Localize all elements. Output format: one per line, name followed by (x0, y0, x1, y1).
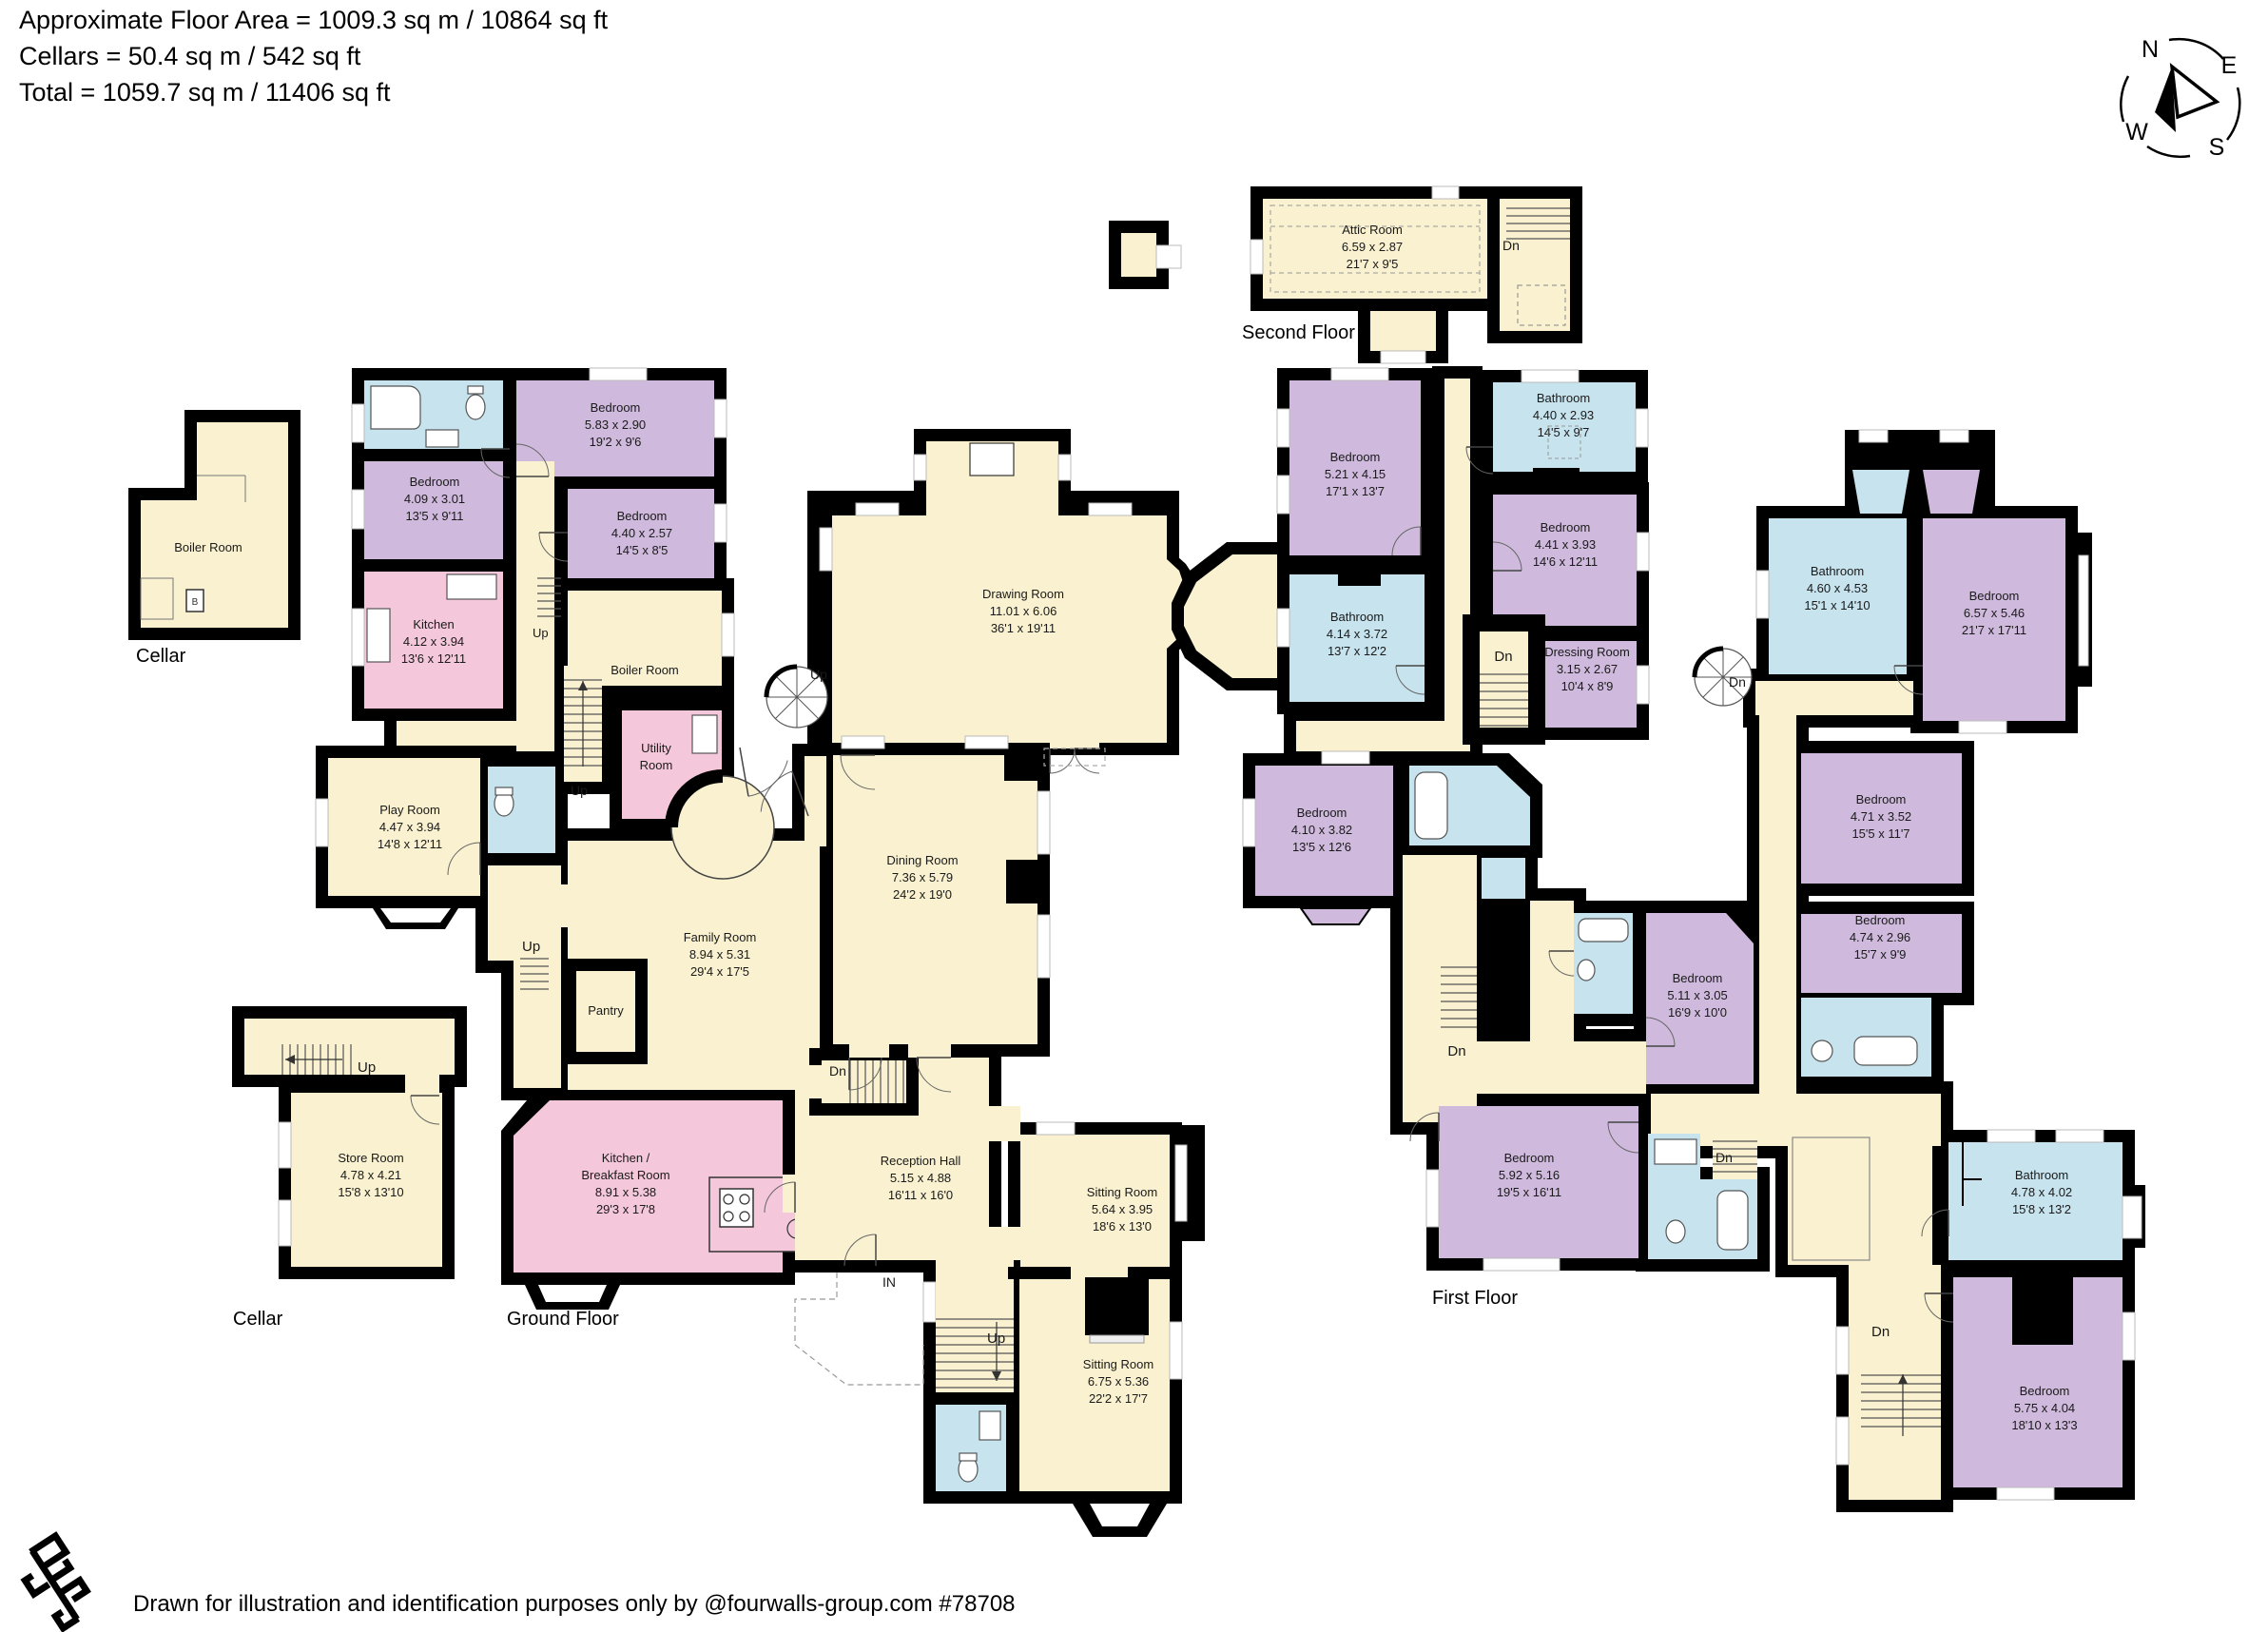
svg-text:15'8 x 13'2: 15'8 x 13'2 (2012, 1202, 2071, 1216)
svg-text:4.74 x 2.96: 4.74 x 2.96 (1850, 930, 1910, 944)
svg-text:17'1 x 13'7: 17'1 x 13'7 (1326, 484, 1385, 498)
svg-text:15'1 x 14'10: 15'1 x 14'10 (1804, 598, 1870, 612)
svg-text:Sitting Room: Sitting Room (1087, 1185, 1157, 1199)
svg-text:Bedroom: Bedroom (1969, 589, 2020, 603)
svg-text:Bedroom: Bedroom (1297, 806, 1347, 820)
svg-text:Bathroom: Bathroom (2015, 1168, 2068, 1182)
svg-text:Up: Up (810, 667, 827, 682)
svg-text:24'2 x 19'0: 24'2 x 19'0 (893, 887, 952, 902)
svg-text:Kitchen: Kitchen (413, 617, 454, 631)
svg-text:S: S (2209, 134, 2225, 161)
svg-text:5.21 x 4.15: 5.21 x 4.15 (1325, 467, 1386, 481)
svg-text:6.59 x 2.87: 6.59 x 2.87 (1342, 240, 1403, 254)
svg-text:36'1 x 19'11: 36'1 x 19'11 (991, 621, 1056, 635)
svg-text:Up: Up (533, 626, 549, 640)
svg-text:Bedroom: Bedroom (1855, 913, 1906, 927)
svg-text:Play Room: Play Room (379, 803, 440, 817)
svg-text:4.78 x 4.02: 4.78 x 4.02 (2011, 1185, 2072, 1199)
svg-text:Dn: Dn (1494, 649, 1512, 665)
svg-text:Second Floor: Second Floor (1242, 322, 1355, 343)
svg-text:Bedroom: Bedroom (1673, 971, 1723, 985)
svg-text:13'5 x 12'6: 13'5 x 12'6 (1292, 840, 1351, 854)
svg-text:Kitchen /: Kitchen / (602, 1151, 650, 1165)
svg-text:5.64 x 3.95: 5.64 x 3.95 (1092, 1202, 1153, 1216)
svg-text:Up: Up (571, 783, 588, 798)
svg-text:19'2 x 9'6: 19'2 x 9'6 (590, 435, 642, 449)
svg-text:Dining Room: Dining Room (886, 853, 958, 867)
svg-text:4.09 x 3.01: 4.09 x 3.01 (404, 492, 465, 506)
svg-text:18'10 x 13'3: 18'10 x 13'3 (2011, 1418, 2077, 1432)
svg-text:15'8 x 13'10: 15'8 x 13'10 (338, 1185, 403, 1199)
svg-text:Boiler Room: Boiler Room (611, 663, 679, 677)
svg-text:Bathroom: Bathroom (1811, 564, 1864, 578)
svg-text:14'6 x 12'11: 14'6 x 12'11 (1533, 554, 1598, 569)
svg-text:Cellar: Cellar (136, 646, 186, 667)
svg-text:Total = 1059.7 sq m / 11406 s: Total = 1059.7 sq m / 11406 sq ft (19, 78, 391, 107)
svg-text:Reception Hall: Reception Hall (881, 1154, 961, 1168)
svg-text:22'2 x 17'7: 22'2 x 17'7 (1089, 1391, 1148, 1406)
svg-text:Dn: Dn (1871, 1324, 1890, 1340)
svg-text:7.36 x 5.79: 7.36 x 5.79 (892, 870, 953, 884)
svg-text:Dn: Dn (1502, 238, 1520, 253)
svg-text:4.40 x 2.57: 4.40 x 2.57 (611, 526, 672, 540)
svg-text:21'7 x 9'5: 21'7 x 9'5 (1347, 257, 1399, 271)
svg-text:Drawing Room: Drawing Room (982, 587, 1064, 601)
svg-text:16'11 x 16'0: 16'11 x 16'0 (888, 1188, 953, 1202)
svg-text:5.11 x 3.05: 5.11 x 3.05 (1667, 988, 1727, 1002)
svg-text:Store Room: Store Room (338, 1151, 403, 1165)
svg-text:Dn: Dn (829, 1063, 846, 1078)
svg-text:Dn: Dn (1729, 674, 1746, 690)
svg-text:18'6 x 13'0: 18'6 x 13'0 (1093, 1219, 1152, 1234)
svg-text:6.75 x 5.36: 6.75 x 5.36 (1088, 1374, 1149, 1389)
svg-text:5.92 x 5.16: 5.92 x 5.16 (1499, 1168, 1560, 1182)
svg-text:4.41 x 3.93: 4.41 x 3.93 (1535, 537, 1596, 552)
svg-text:5.83 x 2.90: 5.83 x 2.90 (585, 418, 646, 432)
svg-text:8.91 x 5.38: 8.91 x 5.38 (595, 1185, 656, 1199)
svg-text:Dn: Dn (1447, 1043, 1465, 1059)
svg-text:Dressing Room: Dressing Room (1544, 645, 1630, 659)
svg-text:Approximate Floor Area = 1009.: Approximate Floor Area = 1009.3 sq m / 1… (19, 6, 609, 34)
svg-text:Up: Up (358, 1059, 376, 1076)
svg-text:E: E (2221, 52, 2238, 79)
svg-text:4.78 x 4.21: 4.78 x 4.21 (340, 1168, 401, 1182)
svg-text:Cellar: Cellar (233, 1309, 283, 1330)
svg-text:15'7 x 9'9: 15'7 x 9'9 (1854, 947, 1907, 962)
svg-text:29'3 x 17'8: 29'3 x 17'8 (596, 1202, 655, 1216)
svg-text:Bedroom: Bedroom (591, 400, 641, 415)
svg-text:Pantry: Pantry (588, 1003, 624, 1018)
svg-text:Breakfast Room: Breakfast Room (581, 1168, 669, 1182)
svg-text:14'5 x 9'7: 14'5 x 9'7 (1538, 425, 1590, 439)
svg-text:10'4 x 8'9: 10'4 x 8'9 (1561, 679, 1614, 693)
svg-text:5.75 x 4.04: 5.75 x 4.04 (2014, 1401, 2075, 1415)
svg-text:21'7 x 17'11: 21'7 x 17'11 (1962, 623, 2026, 637)
svg-text:16'9 x 10'0: 16'9 x 10'0 (1668, 1005, 1727, 1020)
svg-text:13'6 x 12'11: 13'6 x 12'11 (401, 651, 466, 666)
svg-text:N: N (2142, 36, 2159, 63)
svg-text:Cellars = 50.4 sq m / 542 sq f: Cellars = 50.4 sq m / 542 sq ft (19, 42, 361, 70)
svg-text:13'7 x 12'2: 13'7 x 12'2 (1328, 644, 1386, 658)
svg-text:Bathroom: Bathroom (1330, 610, 1384, 624)
svg-text:Room: Room (640, 758, 673, 772)
svg-text:13'5 x 9'11: 13'5 x 9'11 (405, 509, 463, 523)
svg-text:Attic Room: Attic Room (1342, 223, 1403, 237)
svg-text:14'5 x 8'5: 14'5 x 8'5 (616, 543, 669, 557)
svg-text:Bedroom: Bedroom (410, 475, 460, 489)
svg-text:Ground Floor: Ground Floor (507, 1309, 619, 1330)
svg-text:Bedroom: Bedroom (1504, 1151, 1555, 1165)
svg-text:Utility: Utility (641, 741, 671, 755)
svg-text:8.94 x 5.31: 8.94 x 5.31 (689, 947, 750, 962)
svg-text:4.40 x 2.93: 4.40 x 2.93 (1533, 408, 1594, 422)
svg-text:Family Room: Family Room (684, 930, 757, 944)
svg-text:4.71 x 3.52: 4.71 x 3.52 (1851, 809, 1911, 824)
svg-text:Bedroom: Bedroom (2020, 1384, 2070, 1398)
svg-text:B: B (192, 597, 199, 608)
svg-text:Dn: Dn (1716, 1150, 1733, 1165)
svg-text:Boiler Room: Boiler Room (174, 540, 242, 554)
svg-text:Bathroom: Bathroom (1537, 391, 1590, 405)
svg-text:14'8 x 12'11: 14'8 x 12'11 (378, 837, 442, 851)
svg-text:Bedroom: Bedroom (617, 509, 668, 523)
svg-text:W: W (2125, 119, 2148, 146)
svg-text:3.15 x 2.67: 3.15 x 2.67 (1557, 662, 1618, 676)
svg-text:Sitting Room: Sitting Room (1083, 1357, 1153, 1371)
svg-text:4.12 x 3.94: 4.12 x 3.94 (403, 634, 464, 649)
svg-text:IN: IN (882, 1274, 896, 1290)
svg-text:29'4 x 17'5: 29'4 x 17'5 (690, 964, 749, 979)
svg-text:15'5 x 11'7: 15'5 x 11'7 (1851, 826, 1909, 841)
svg-text:First Floor: First Floor (1432, 1288, 1518, 1309)
svg-text:Bedroom: Bedroom (1856, 792, 1907, 806)
svg-text:5.15 x 4.88: 5.15 x 4.88 (890, 1171, 951, 1185)
svg-text:19'5 x 16'11: 19'5 x 16'11 (1497, 1185, 1561, 1199)
svg-text:Up: Up (522, 939, 540, 955)
svg-text:4.10 x 3.82: 4.10 x 3.82 (1291, 823, 1352, 837)
svg-text:4.47 x 3.94: 4.47 x 3.94 (379, 820, 440, 834)
svg-text:4.60 x 4.53: 4.60 x 4.53 (1807, 581, 1868, 595)
svg-text:Bedroom: Bedroom (1541, 520, 1591, 534)
svg-text:Bedroom: Bedroom (1330, 450, 1381, 464)
svg-text:4.14 x 3.72: 4.14 x 3.72 (1327, 627, 1387, 641)
svg-text:6.57 x 5.46: 6.57 x 5.46 (1964, 606, 2025, 620)
svg-text:Drawn for illustration and ide: Drawn for illustration and identificatio… (133, 1591, 1016, 1617)
svg-text:11.01 x 6.06: 11.01 x 6.06 (990, 604, 1057, 618)
